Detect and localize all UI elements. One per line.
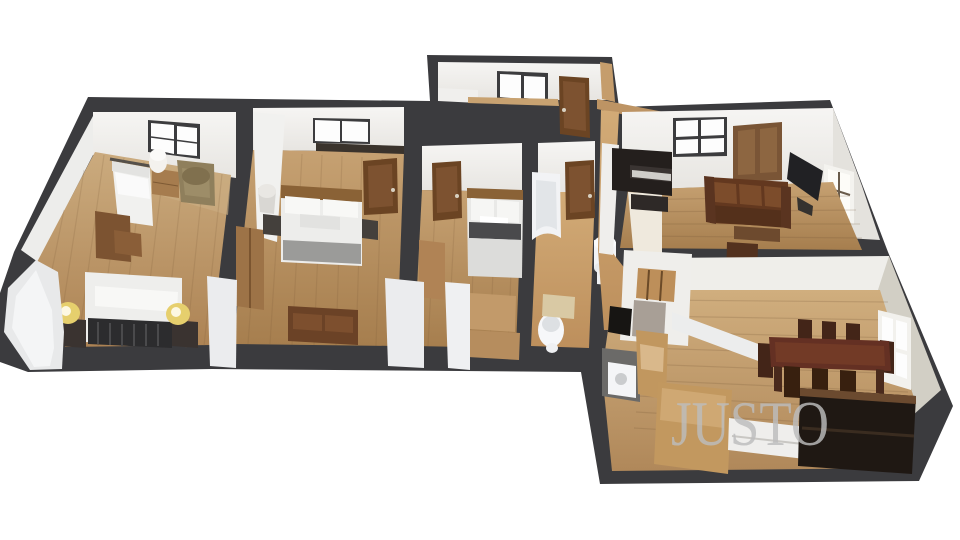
- svg-text:JUSTO: JUSTO: [671, 388, 829, 459]
